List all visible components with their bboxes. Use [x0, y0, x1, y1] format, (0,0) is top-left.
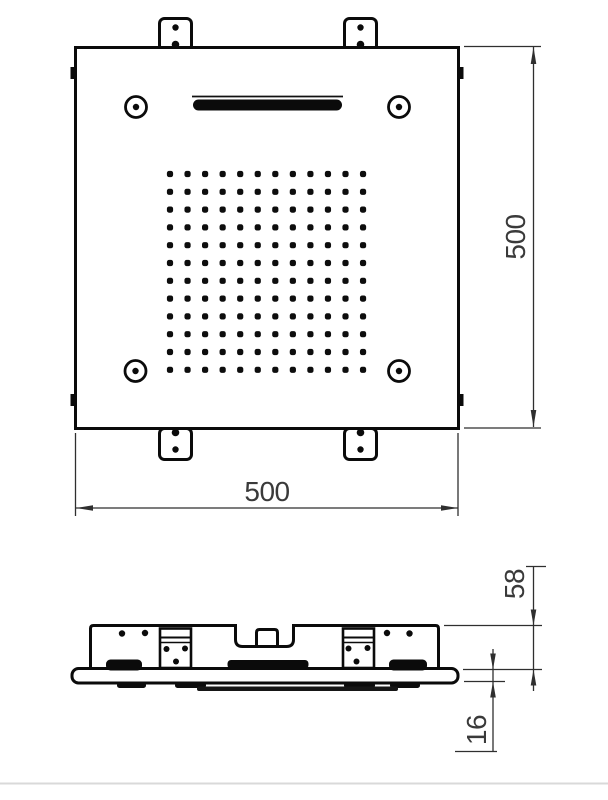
nozzle-dot [167, 296, 173, 302]
nozzle-dot [307, 367, 313, 373]
nozzle-dot [184, 367, 190, 373]
nozzle-dot [202, 189, 208, 195]
nozzle-dot [290, 207, 296, 213]
nozzle-dot [237, 242, 243, 248]
nozzle-dot [220, 331, 226, 337]
nozzle-dot [202, 207, 208, 213]
nozzle-dot [290, 189, 296, 195]
nozzle-dot [255, 367, 261, 373]
nozzle-dot [255, 278, 261, 284]
nozzle-dot [342, 207, 348, 213]
housing-hole [384, 630, 390, 636]
nozzle-dot [342, 224, 348, 230]
dimension-plate-thickness: 16 [455, 649, 505, 752]
nozzle-dot [184, 349, 190, 355]
bracket-hole [357, 446, 363, 452]
center-manifold [228, 660, 309, 669]
nozzle-dot [360, 349, 366, 355]
nozzle-dot [202, 296, 208, 302]
nozzle-dot [255, 331, 261, 337]
gasket-pad-right [389, 660, 427, 671]
nozzle-dot [360, 189, 366, 195]
nozzle-dot [202, 260, 208, 266]
nozzle-dot [237, 367, 243, 373]
nozzle-dot [290, 171, 296, 177]
nozzle-dot [255, 207, 261, 213]
corner-screw-top-left [126, 97, 147, 118]
nozzle-dot [202, 242, 208, 248]
nozzle-dot [255, 260, 261, 266]
nozzle-dot [272, 189, 278, 195]
nozzle-dot [325, 313, 331, 319]
nozzle-dot [325, 189, 331, 195]
nozzle-dot [272, 242, 278, 248]
nozzle-dot [184, 331, 190, 337]
nozzle-dot [184, 224, 190, 230]
nozzle-dot [184, 313, 190, 319]
nozzle-dot [255, 171, 261, 177]
nozzle-dot [220, 189, 226, 195]
nozzle-dot [272, 260, 278, 266]
arrowhead-up [531, 47, 537, 64]
nozzle-dot [360, 313, 366, 319]
mounting-bracket-top-left [160, 19, 192, 51]
side-view: 58 16 [72, 566, 546, 752]
nozzle-dot [307, 260, 313, 266]
nozzle-dot [272, 296, 278, 302]
nozzle-dot [290, 278, 296, 284]
nozzle-dot [325, 367, 331, 373]
housing-hole [406, 630, 412, 636]
nozzle-dot [255, 313, 261, 319]
nozzle-dot [290, 349, 296, 355]
nozzle-dot [360, 260, 366, 266]
arrowhead-down [490, 654, 496, 670]
nozzle-dot [237, 207, 243, 213]
nozzle-dot [342, 331, 348, 337]
nozzle-dot [237, 349, 243, 355]
side-bracket-left [160, 629, 191, 669]
housing-hole [119, 630, 125, 636]
nozzle-dot [272, 349, 278, 355]
nozzle-dot [202, 224, 208, 230]
nozzle-dot [325, 242, 331, 248]
nozzle-dot [325, 278, 331, 284]
nozzle-dot [167, 224, 173, 230]
nozzle-dot [220, 207, 226, 213]
nozzle-dot [272, 278, 278, 284]
dimension-height: 500 [464, 47, 541, 429]
nozzle-dot [290, 331, 296, 337]
nozzle-dot [290, 296, 296, 302]
bracket-hole [346, 646, 352, 652]
nozzle-dot [237, 313, 243, 319]
nozzle-dot [167, 313, 173, 319]
nozzle-dot [220, 260, 226, 266]
nozzle-dot [290, 242, 296, 248]
bracket-hole [172, 24, 178, 30]
nozzle-dot [184, 207, 190, 213]
nozzle-dot [325, 296, 331, 302]
nozzle-dot [220, 367, 226, 373]
nozzle-dot [220, 313, 226, 319]
spray-face-strip [197, 687, 398, 692]
side-bracket-right [343, 629, 374, 669]
nozzle-dot [290, 224, 296, 230]
mounting-bracket-bottom-left [160, 429, 192, 460]
nozzle-dot [237, 296, 243, 302]
nozzle-dot [342, 260, 348, 266]
face-plate [72, 669, 458, 684]
nozzle-dot [360, 224, 366, 230]
top-view: 500 500 [71, 19, 542, 517]
dimension-width-label: 500 [244, 476, 289, 507]
underside-boss [117, 683, 146, 689]
nozzle-dot [307, 296, 313, 302]
arrowhead-left [76, 505, 93, 511]
nozzle-dot [237, 331, 243, 337]
nozzle-dot [202, 278, 208, 284]
nozzle-dot [220, 349, 226, 355]
nozzle-dot [290, 367, 296, 373]
frame-tab-left-bottom [71, 394, 76, 406]
nozzle-dot [184, 189, 190, 195]
nozzle-dot [237, 278, 243, 284]
nozzle-dot [202, 349, 208, 355]
nozzle-dot [202, 331, 208, 337]
nozzle-dot [167, 331, 173, 337]
nozzle-dot [360, 367, 366, 373]
dimension-depth-label: 58 [499, 569, 530, 599]
nozzle-dot [255, 296, 261, 302]
nozzle-dot [325, 207, 331, 213]
nozzle-dot [255, 242, 261, 248]
nozzle-dot [220, 296, 226, 302]
dimension-width: 500 [76, 433, 459, 516]
nozzle-dot [307, 242, 313, 248]
bracket-hole [164, 646, 170, 652]
nozzle-dot [272, 313, 278, 319]
bracket-hole [182, 646, 188, 652]
nozzle-dot [202, 367, 208, 373]
nozzle-dot [307, 207, 313, 213]
nozzle-dot [237, 260, 243, 266]
nozzle-dot [360, 278, 366, 284]
arrowhead-down [531, 410, 537, 427]
bracket-hole [172, 446, 178, 452]
nozzle-dot [342, 189, 348, 195]
nozzle-dot [360, 171, 366, 177]
nozzle-dot [325, 224, 331, 230]
nozzle-dot [167, 260, 173, 266]
nozzle-dot [342, 278, 348, 284]
nozzle-dot [307, 331, 313, 337]
bracket-hole [357, 24, 363, 30]
nozzle-dot [237, 171, 243, 177]
nozzle-dot [307, 278, 313, 284]
nozzle-dot [360, 296, 366, 302]
nozzle-dot [184, 260, 190, 266]
nozzle-dot [272, 367, 278, 373]
nozzle-dot [290, 313, 296, 319]
nozzle-dot [290, 260, 296, 266]
nozzle-dot [220, 278, 226, 284]
nozzle-dot [184, 171, 190, 177]
bracket-hole [365, 645, 371, 651]
nozzle-dot [167, 242, 173, 248]
bracket-hole [354, 659, 360, 665]
nozzle-dot [184, 278, 190, 284]
drawing-page: 500 500 [0, 0, 608, 800]
nozzle-dot [325, 171, 331, 177]
nozzle-dot [307, 171, 313, 177]
nozzle-dot [272, 207, 278, 213]
nozzle-dot [184, 242, 190, 248]
frame-tab-left-top [71, 67, 76, 79]
nozzle-dot [255, 349, 261, 355]
nozzle-dot [167, 189, 173, 195]
nozzle-dot [237, 224, 243, 230]
nozzle-dot [360, 207, 366, 213]
nozzle-dot [220, 242, 226, 248]
nozzle-dot [272, 331, 278, 337]
nozzle-dot [360, 331, 366, 337]
dimension-depth: 58 [444, 566, 546, 691]
nozzle-dot [167, 278, 173, 284]
frame-tab-right-bottom [459, 394, 464, 406]
nozzle-dot [342, 242, 348, 248]
nozzle-dot [307, 189, 313, 195]
arrowhead-up [531, 670, 537, 686]
corner-screw-bottom-right [389, 361, 410, 382]
nozzle-dot [342, 313, 348, 319]
bracket-hole [173, 659, 179, 665]
dimension-plate-thickness-label: 16 [461, 715, 492, 745]
nozzle-dot [325, 260, 331, 266]
nozzle-dot [307, 224, 313, 230]
housing-hole [142, 630, 148, 636]
nozzle-dot [167, 367, 173, 373]
nozzle-dot [360, 242, 366, 248]
nozzle-dot [342, 171, 348, 177]
frame-tab-right-top [459, 67, 464, 79]
nozzle-dot [255, 189, 261, 195]
corner-screw-bottom-left [125, 361, 146, 382]
gasket-pad-left [106, 660, 142, 671]
nozzle-dot [202, 313, 208, 319]
arrowhead-right [441, 505, 458, 511]
nozzle-dot [325, 331, 331, 337]
nozzle-dot [255, 224, 261, 230]
nozzle-dot [307, 349, 313, 355]
nozzle-dot [167, 171, 173, 177]
nozzle-dot [184, 296, 190, 302]
nozzle-dot [272, 171, 278, 177]
arrowhead-up [490, 682, 496, 698]
nozzle-dot [220, 171, 226, 177]
corner-screw-top-right [389, 97, 410, 118]
nozzle-dot [307, 313, 313, 319]
nozzle-dot [167, 349, 173, 355]
nozzle-dot [272, 224, 278, 230]
dimension-height-label: 500 [500, 214, 531, 259]
nozzle-dot [220, 224, 226, 230]
nozzle-dot [342, 296, 348, 302]
nozzle-dot [167, 207, 173, 213]
shower-head-technical-drawing: 500 500 [0, 0, 608, 800]
nozzle-dot [325, 349, 331, 355]
nozzle-dot [342, 349, 348, 355]
mounting-bracket-top-right [345, 19, 377, 51]
nozzle-dot [342, 367, 348, 373]
nozzle-dot [237, 189, 243, 195]
nozzle-dot [202, 171, 208, 177]
mounting-bracket-bottom-right [345, 429, 377, 460]
arrowhead-down [531, 610, 537, 626]
